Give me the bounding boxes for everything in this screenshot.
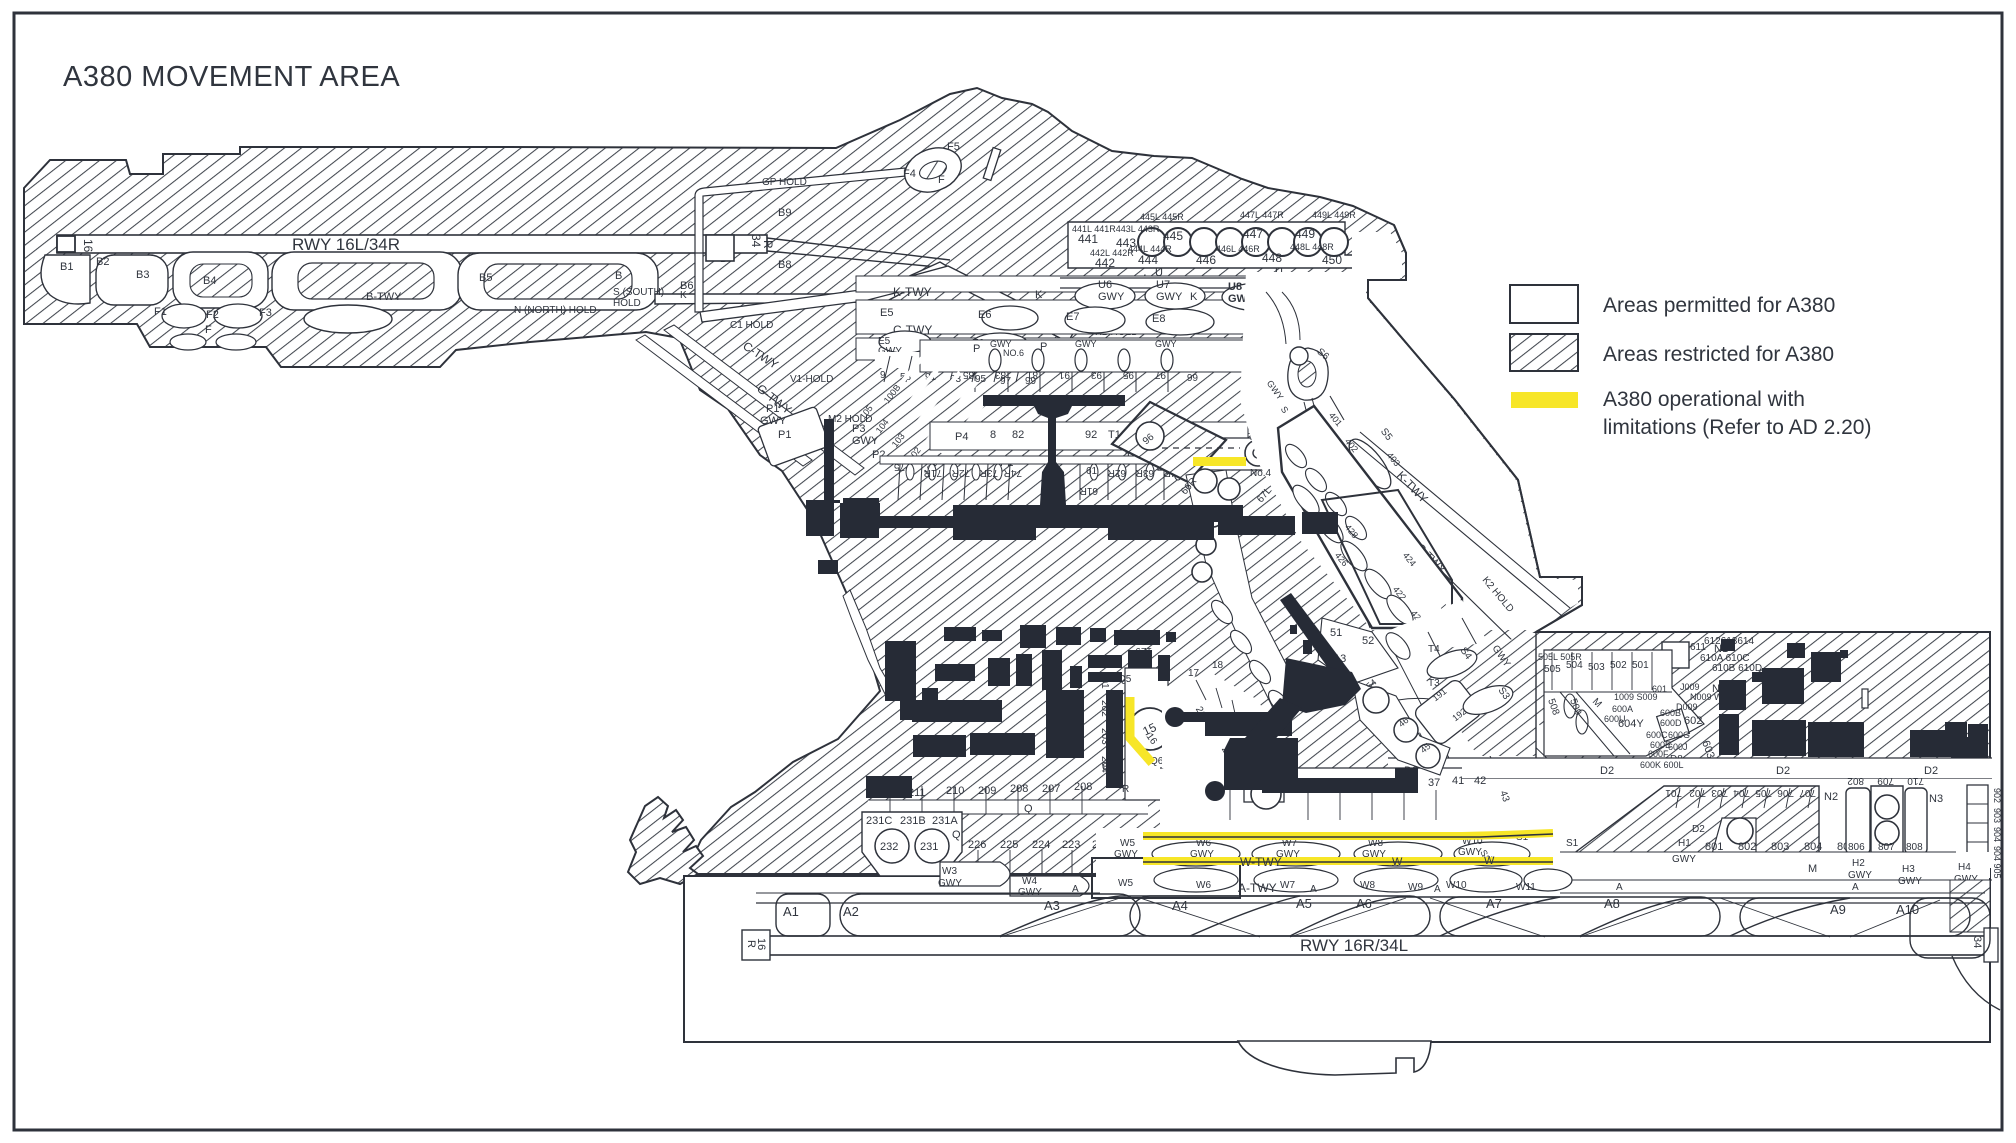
svg-text:442: 442 bbox=[1095, 256, 1115, 270]
svg-text:W4: W4 bbox=[1022, 876, 1037, 887]
svg-text:804: 804 bbox=[1804, 841, 1822, 853]
svg-text:HOLD: HOLD bbox=[613, 298, 641, 309]
svg-text:18: 18 bbox=[1212, 660, 1224, 671]
svg-text:K: K bbox=[680, 290, 687, 301]
svg-text:803: 803 bbox=[1771, 841, 1789, 853]
svg-text:209: 209 bbox=[978, 785, 996, 797]
svg-text:449L 449R: 449L 449R bbox=[1312, 210, 1356, 220]
svg-text:73R: 73R bbox=[980, 467, 998, 478]
svg-text:231C: 231C bbox=[866, 815, 892, 827]
svg-text:8: 8 bbox=[990, 429, 996, 441]
svg-text:H2: H2 bbox=[1852, 858, 1865, 869]
svg-text:GWY: GWY bbox=[1075, 339, 1097, 349]
svg-text:W10: W10 bbox=[1446, 880, 1467, 891]
svg-text:A8: A8 bbox=[1604, 896, 1620, 911]
svg-text:34: 34 bbox=[749, 234, 763, 248]
svg-text:705: 705 bbox=[1755, 787, 1772, 798]
svg-text:706: 706 bbox=[1777, 787, 1794, 798]
svg-text:B9: B9 bbox=[778, 207, 791, 219]
svg-text:D2: D2 bbox=[1776, 765, 1790, 777]
svg-text:GWY: GWY bbox=[1848, 870, 1872, 881]
svg-text:51: 51 bbox=[1330, 627, 1342, 639]
svg-text:Areas permitted for A380: Areas permitted for A380 bbox=[1603, 294, 1835, 317]
svg-text:16: 16 bbox=[81, 239, 95, 253]
svg-text:34: 34 bbox=[1971, 936, 1983, 948]
svg-text:F: F bbox=[938, 174, 945, 186]
svg-text:600C: 600C bbox=[1646, 730, 1668, 740]
svg-text:207: 207 bbox=[1042, 783, 1060, 795]
svg-text:231: 231 bbox=[920, 841, 938, 853]
svg-text:W8: W8 bbox=[1360, 880, 1375, 891]
svg-text:A6: A6 bbox=[1356, 896, 1372, 911]
svg-text:S (SOUTH): S (SOUTH) bbox=[613, 287, 664, 298]
svg-text:441: 441 bbox=[1078, 232, 1098, 246]
svg-text:223: 223 bbox=[1062, 839, 1080, 851]
svg-text:P: P bbox=[973, 343, 980, 355]
svg-text:B3: B3 bbox=[136, 269, 149, 281]
svg-text:92: 92 bbox=[1085, 429, 1097, 441]
svg-text:904: 904 bbox=[1992, 827, 2002, 842]
svg-text:505: 505 bbox=[1544, 664, 1561, 675]
svg-text:A9: A9 bbox=[1830, 902, 1846, 917]
svg-text:600A: 600A bbox=[1612, 704, 1633, 714]
svg-text:75: 75 bbox=[893, 461, 905, 472]
svg-text:R: R bbox=[745, 940, 757, 948]
svg-text:U: U bbox=[1155, 267, 1163, 279]
svg-text:231A: 231A bbox=[932, 815, 958, 827]
svg-text:E6: E6 bbox=[978, 309, 991, 321]
svg-text:F3: F3 bbox=[259, 307, 272, 319]
svg-text:S1: S1 bbox=[1566, 838, 1579, 849]
svg-text:Q: Q bbox=[952, 829, 961, 841]
svg-text:H4: H4 bbox=[1958, 862, 1971, 873]
svg-text:W: W bbox=[1392, 856, 1403, 868]
svg-text:208: 208 bbox=[1074, 781, 1092, 793]
svg-text:74R: 74R bbox=[1004, 467, 1022, 478]
svg-text:M: M bbox=[1808, 863, 1817, 875]
svg-text:GP HOLD: GP HOLD bbox=[762, 177, 807, 188]
svg-text:41: 41 bbox=[1452, 775, 1464, 787]
svg-text:709: 709 bbox=[1877, 775, 1894, 786]
svg-text:D2: D2 bbox=[1924, 765, 1938, 777]
svg-text:GWY: GWY bbox=[1672, 854, 1696, 865]
svg-text:83: 83 bbox=[994, 369, 1006, 380]
svg-text:444: 444 bbox=[1138, 253, 1158, 267]
svg-text:504: 504 bbox=[1566, 660, 1583, 671]
svg-text:501: 501 bbox=[1632, 660, 1649, 671]
svg-text:A: A bbox=[1310, 884, 1317, 895]
svg-text:F4: F4 bbox=[903, 168, 916, 180]
svg-text:Areas restricted for A380: Areas restricted for A380 bbox=[1603, 343, 1834, 366]
svg-text:K: K bbox=[1035, 289, 1043, 301]
svg-text:81: 81 bbox=[1026, 369, 1038, 380]
svg-text:A2: A2 bbox=[843, 904, 859, 919]
svg-text:RWY 16L/34R: RWY 16L/34R bbox=[292, 235, 400, 254]
svg-text:231B: 231B bbox=[900, 815, 926, 827]
svg-text:903: 903 bbox=[1992, 808, 2002, 823]
svg-text:82: 82 bbox=[1012, 429, 1024, 441]
svg-text:W9: W9 bbox=[1408, 882, 1423, 893]
svg-text:H3: H3 bbox=[1902, 864, 1915, 875]
svg-text:226: 226 bbox=[968, 839, 986, 851]
svg-text:A10: A10 bbox=[1896, 902, 1919, 917]
svg-text:T3: T3 bbox=[1428, 678, 1440, 689]
svg-text:N (NORTH) HOLD: N (NORTH) HOLD bbox=[514, 305, 597, 316]
svg-text:B2: B2 bbox=[96, 256, 109, 268]
svg-text:F2: F2 bbox=[206, 309, 219, 321]
svg-text:W5: W5 bbox=[1120, 838, 1135, 849]
svg-text:E5: E5 bbox=[880, 307, 893, 319]
svg-text:Q: Q bbox=[1024, 803, 1033, 815]
svg-text:A: A bbox=[1072, 884, 1079, 895]
svg-text:W6: W6 bbox=[1196, 880, 1211, 891]
svg-text:B1: B1 bbox=[60, 261, 73, 273]
svg-text:N2: N2 bbox=[1824, 791, 1838, 803]
svg-text:600D: 600D bbox=[1660, 718, 1682, 728]
svg-text:T4: T4 bbox=[1428, 644, 1440, 655]
svg-text:902: 902 bbox=[1992, 788, 2002, 803]
svg-text:503: 503 bbox=[1588, 662, 1605, 673]
svg-text:210: 210 bbox=[946, 785, 964, 797]
svg-text:F: F bbox=[205, 324, 212, 336]
svg-text:A380 MOVEMENT AREA: A380 MOVEMENT AREA bbox=[63, 61, 400, 93]
svg-text:B8: B8 bbox=[778, 259, 791, 271]
svg-text:R: R bbox=[1122, 784, 1129, 795]
svg-text:448L 448R: 448L 448R bbox=[1290, 242, 1334, 252]
svg-text:D2: D2 bbox=[1692, 824, 1705, 835]
svg-text:61: 61 bbox=[1086, 466, 1098, 477]
svg-text:95: 95 bbox=[1122, 369, 1134, 380]
svg-text:600G: 600G bbox=[1668, 730, 1690, 740]
svg-text:RWY 16R/34L: RWY 16R/34L bbox=[1300, 936, 1408, 955]
svg-text:P: P bbox=[1040, 341, 1047, 353]
svg-text:B-TWY: B-TWY bbox=[366, 291, 402, 303]
svg-text:71R: 71R bbox=[924, 467, 942, 478]
svg-text:97: 97 bbox=[1154, 369, 1166, 380]
svg-text:208: 208 bbox=[1010, 783, 1028, 795]
svg-text:B5: B5 bbox=[479, 272, 492, 284]
svg-text:B: B bbox=[615, 270, 622, 282]
svg-text:W3: W3 bbox=[942, 866, 957, 877]
svg-text:225: 225 bbox=[1000, 839, 1018, 851]
svg-text:93: 93 bbox=[1090, 369, 1102, 380]
svg-text:A3: A3 bbox=[1044, 898, 1060, 913]
svg-text:P1: P1 bbox=[766, 403, 779, 415]
svg-text:H1: H1 bbox=[1678, 838, 1691, 849]
svg-text:A-TWY: A-TWY bbox=[1238, 881, 1277, 895]
svg-text:704: 704 bbox=[1733, 787, 1750, 798]
svg-text:602: 602 bbox=[1684, 715, 1702, 727]
svg-text:72R: 72R bbox=[952, 467, 970, 478]
svg-text:601: 601 bbox=[1652, 684, 1667, 694]
svg-text:GWY: GWY bbox=[938, 878, 962, 889]
svg-text:E7: E7 bbox=[1066, 311, 1079, 323]
svg-text:V1-HOLD: V1-HOLD bbox=[790, 374, 833, 385]
svg-text:62R: 62R bbox=[1108, 467, 1126, 478]
svg-text:17: 17 bbox=[1188, 668, 1200, 679]
svg-text:449: 449 bbox=[1295, 227, 1315, 241]
svg-text:801: 801 bbox=[1705, 841, 1723, 853]
svg-text:J009: J009 bbox=[1680, 682, 1700, 692]
svg-text:D2: D2 bbox=[1600, 765, 1614, 777]
svg-text:F1: F1 bbox=[154, 306, 167, 318]
svg-text:A5: A5 bbox=[1296, 896, 1312, 911]
svg-text:A380 operational with: A380 operational with bbox=[1603, 388, 1805, 411]
svg-text:F5: F5 bbox=[947, 141, 960, 153]
svg-text:A4: A4 bbox=[1172, 898, 1188, 913]
svg-text:U7: U7 bbox=[1156, 279, 1170, 291]
svg-text:A: A bbox=[1434, 884, 1441, 895]
svg-text:U6: U6 bbox=[1098, 279, 1112, 291]
svg-text:63R: 63R bbox=[1136, 467, 1154, 478]
svg-text:U8: U8 bbox=[1228, 281, 1242, 293]
svg-text:GWY: GWY bbox=[852, 435, 879, 447]
svg-text:B4: B4 bbox=[203, 275, 216, 287]
svg-text:703: 703 bbox=[1711, 787, 1728, 798]
svg-text:GWY: GWY bbox=[760, 415, 787, 427]
svg-text:No.4: No.4 bbox=[1250, 468, 1272, 479]
svg-text:K-TWY: K-TWY bbox=[893, 285, 932, 299]
svg-text:85: 85 bbox=[962, 369, 974, 380]
svg-text:802: 802 bbox=[1738, 841, 1756, 853]
svg-text:R: R bbox=[761, 240, 775, 249]
svg-text:446L 446R: 446L 446R bbox=[1216, 244, 1260, 254]
svg-text:NO.6: NO.6 bbox=[1003, 348, 1024, 358]
svg-text:447: 447 bbox=[1243, 227, 1263, 241]
svg-text:GWY: GWY bbox=[1898, 876, 1922, 887]
svg-text:600K 600L: 600K 600L bbox=[1640, 760, 1684, 770]
svg-text:448: 448 bbox=[1262, 251, 1282, 265]
svg-text:604Y: 604Y bbox=[1618, 718, 1644, 730]
svg-text:W-TWY: W-TWY bbox=[1240, 855, 1282, 869]
svg-text:limitations (Refer to AD 2.20): limitations (Refer to AD 2.20) bbox=[1603, 416, 1871, 439]
svg-text:W7: W7 bbox=[1280, 880, 1295, 891]
svg-text:91: 91 bbox=[1058, 369, 1070, 380]
svg-text:600J: 600J bbox=[1668, 742, 1688, 752]
svg-text:904 905: 904 905 bbox=[1992, 846, 2002, 879]
svg-text:52: 52 bbox=[1362, 635, 1374, 647]
svg-text:707: 707 bbox=[1799, 787, 1816, 798]
svg-text:W: W bbox=[1484, 855, 1495, 867]
svg-text:A7: A7 bbox=[1486, 896, 1502, 911]
svg-text:600B: 600B bbox=[1660, 708, 1681, 718]
svg-text:710: 710 bbox=[1907, 775, 1924, 786]
svg-text:A: A bbox=[1616, 882, 1623, 893]
svg-text:446: 446 bbox=[1196, 253, 1216, 267]
svg-text:808: 808 bbox=[1906, 842, 1923, 853]
svg-text:502: 502 bbox=[1610, 660, 1627, 671]
svg-text:802: 802 bbox=[1847, 775, 1864, 786]
svg-text:224: 224 bbox=[1032, 839, 1050, 851]
svg-text:37: 37 bbox=[1428, 777, 1440, 789]
svg-text:232: 232 bbox=[880, 841, 898, 853]
svg-text:806: 806 bbox=[1848, 842, 1865, 853]
svg-text:GWY: GWY bbox=[1098, 291, 1125, 303]
svg-text:P1: P1 bbox=[778, 429, 791, 441]
svg-text:E8: E8 bbox=[1152, 313, 1165, 325]
svg-text:445L 445R: 445L 445R bbox=[1140, 212, 1184, 222]
svg-text:W5: W5 bbox=[1118, 878, 1133, 889]
svg-text:9: 9 bbox=[880, 370, 886, 381]
svg-text:GWY: GWY bbox=[1155, 339, 1177, 349]
svg-text:K: K bbox=[1190, 291, 1198, 303]
svg-text:445: 445 bbox=[1163, 229, 1183, 243]
svg-text:P4: P4 bbox=[955, 431, 968, 443]
svg-text:N3: N3 bbox=[1929, 793, 1943, 805]
svg-text:701: 701 bbox=[1665, 787, 1682, 798]
svg-text:GWY: GWY bbox=[1156, 291, 1183, 303]
svg-text:447L 447R: 447L 447R bbox=[1240, 210, 1284, 220]
svg-text:66: 66 bbox=[1186, 371, 1198, 382]
svg-text:42: 42 bbox=[1474, 775, 1486, 787]
svg-text:61R: 61R bbox=[1080, 485, 1098, 496]
svg-text:702: 702 bbox=[1689, 787, 1706, 798]
svg-text:A: A bbox=[1852, 882, 1859, 893]
svg-text:W11: W11 bbox=[1516, 882, 1536, 893]
svg-text:P3: P3 bbox=[852, 423, 865, 435]
svg-text:A1: A1 bbox=[783, 904, 799, 919]
svg-text:1009 S009: 1009 S009 bbox=[1614, 692, 1658, 702]
svg-text:450: 450 bbox=[1322, 253, 1342, 267]
svg-text:807: 807 bbox=[1878, 842, 1895, 853]
svg-text:C1 HOLD: C1 HOLD bbox=[730, 320, 773, 331]
